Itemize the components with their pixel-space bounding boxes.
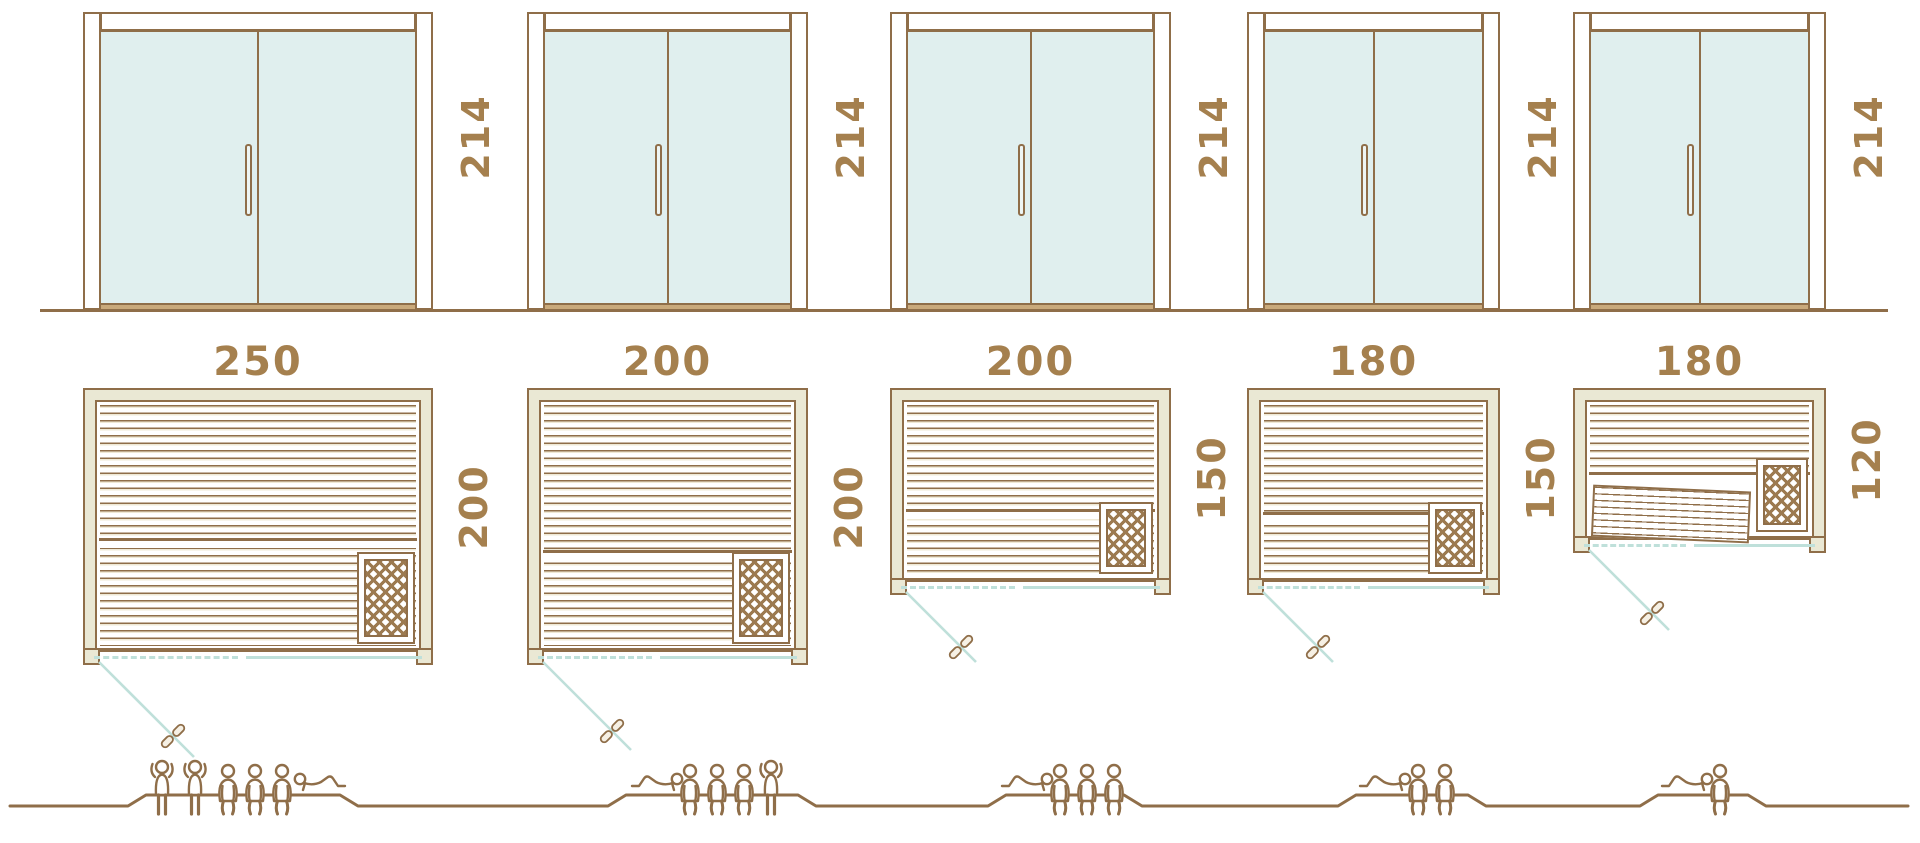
door-frame-right-post	[790, 12, 808, 310]
plan-width-label: 180	[1249, 340, 1498, 384]
floor-plan: 180 120	[1573, 388, 1826, 540]
door-handle-icon	[1687, 144, 1694, 216]
heater-grid-icon	[364, 559, 408, 637]
floor-line	[845, 309, 1233, 312]
floor-line	[482, 309, 870, 312]
ground-line	[10, 795, 1908, 806]
person-sitting-icon	[1436, 765, 1453, 814]
door-divider-line	[1030, 32, 1032, 303]
person-standing-icon	[151, 761, 172, 814]
door-handle-icon	[1361, 144, 1368, 216]
person-sitting-icon	[219, 765, 236, 814]
door-swing	[900, 588, 1060, 728]
person-sitting-icon	[1105, 765, 1122, 814]
heater-grid-icon	[1763, 465, 1801, 525]
plan-interior	[1585, 400, 1814, 538]
glass-double-door	[544, 31, 791, 304]
person-sitting-icon	[273, 765, 290, 814]
floor-line	[1202, 309, 1562, 312]
person-sitting-icon	[735, 765, 752, 814]
heater-icon	[732, 552, 790, 644]
heater-grid-icon	[1435, 509, 1475, 567]
sauna-column-1: 214 250 200	[83, 0, 433, 843]
heater-icon	[1428, 502, 1482, 574]
door-frame-right-post	[1153, 12, 1171, 310]
door-height-label: 214	[1521, 77, 1565, 197]
door-elevation: 214	[1247, 12, 1500, 310]
door-height-label: 214	[1192, 77, 1236, 197]
door-frame-header	[907, 12, 1154, 31]
door-height-label: 214	[454, 77, 498, 197]
floor-plan: 250 200	[83, 388, 433, 652]
door-frame-left-post	[890, 12, 908, 310]
door-frame-left-post	[83, 12, 101, 310]
person-lying-icon	[295, 774, 345, 790]
capacity-group-4	[1360, 765, 1454, 814]
plan-depth-label: 200	[827, 447, 871, 567]
capacity-group-3	[1002, 765, 1123, 814]
person-standing-icon	[760, 761, 781, 814]
door-frame-right-post	[1808, 12, 1826, 310]
glass-double-door	[907, 31, 1154, 304]
person-lying-icon	[1002, 774, 1052, 790]
plan-interior	[539, 400, 796, 650]
door-divider-line	[667, 32, 669, 303]
plan-interior	[1259, 400, 1488, 580]
glass-double-door	[100, 31, 416, 304]
plan-depth-label: 200	[452, 447, 496, 567]
door-frame-left-post	[1247, 12, 1265, 310]
door-height-label: 214	[829, 77, 873, 197]
floor-line	[40, 309, 495, 312]
glass-double-door	[1264, 31, 1483, 304]
person-standing-icon	[184, 761, 205, 814]
sauna-column-2: 214 200 200	[527, 0, 808, 843]
person-sitting-icon	[1051, 765, 1068, 814]
floor-line	[1528, 309, 1888, 312]
plan-width-label: 180	[1575, 340, 1824, 384]
sauna-size-diagram: 214 250 200	[0, 0, 1920, 843]
person-lying-icon	[632, 774, 682, 790]
plan-width-label: 200	[529, 340, 806, 384]
door-frame-left-post	[527, 12, 545, 310]
door-swing-line	[543, 662, 631, 750]
floor-plan: 200 150	[890, 388, 1171, 582]
door-height-label: 214	[1847, 77, 1891, 197]
door-divider-line	[257, 32, 259, 303]
floor-plan: 200 200	[527, 388, 808, 652]
heater-grid-icon	[1106, 509, 1146, 567]
capacity-group-1	[151, 761, 345, 814]
person-lying-icon	[1662, 774, 1712, 790]
door-swing	[1583, 546, 1743, 686]
glass-wall-line	[246, 656, 422, 659]
door-elevation: 214	[1573, 12, 1826, 310]
door-divider-line	[1699, 32, 1701, 303]
capacity-group-5	[1662, 765, 1729, 814]
plan-depth-label: 150	[1519, 418, 1563, 538]
door-frame-header	[1264, 12, 1483, 31]
floor-plan: 180 150	[1247, 388, 1500, 582]
door-handle-icon	[1018, 144, 1025, 216]
door-elevation: 214	[890, 12, 1171, 310]
plan-depth-label: 150	[1190, 418, 1234, 538]
door-handle-icon	[245, 144, 252, 216]
door-handle-icon	[655, 144, 662, 216]
heater-icon	[357, 552, 415, 644]
sauna-column-4: 214 180 150	[1247, 0, 1500, 843]
door-elevation: 214	[527, 12, 808, 310]
door-swing	[1257, 588, 1417, 728]
door-frame-header	[1590, 12, 1809, 31]
capacity-group-2	[632, 761, 782, 814]
angled-bench	[1591, 485, 1751, 544]
door-frame-header	[100, 12, 416, 31]
plan-depth-label: 120	[1845, 400, 1889, 520]
heater-grid-icon	[739, 559, 783, 637]
capacity-strip	[0, 743, 1920, 843]
person-sitting-icon	[1409, 765, 1426, 814]
person-sitting-icon	[1711, 765, 1728, 814]
person-sitting-icon	[681, 765, 698, 814]
door-swing-line	[1589, 550, 1669, 630]
person-sitting-icon	[708, 765, 725, 814]
person-lying-icon	[1360, 774, 1410, 790]
person-sitting-icon	[1078, 765, 1095, 814]
door-swing-line	[1263, 592, 1333, 662]
sauna-column-3: 214 200 150	[890, 0, 1171, 843]
plan-width-label: 200	[892, 340, 1169, 384]
door-swing-line	[906, 592, 976, 662]
door-frame-left-post	[1573, 12, 1591, 310]
door-frame-header	[544, 12, 791, 31]
door-frame-right-post	[1482, 12, 1500, 310]
person-sitting-icon	[246, 765, 263, 814]
plan-interior	[902, 400, 1159, 580]
glass-double-door	[1590, 31, 1809, 304]
door-elevation: 214	[83, 12, 433, 310]
bench-edge-line	[99, 538, 417, 548]
plan-width-label: 250	[85, 340, 431, 384]
sauna-column-5: 214 180 120	[1573, 0, 1826, 843]
door-frame-right-post	[415, 12, 433, 310]
heater-icon	[1756, 458, 1808, 532]
heater-icon	[1099, 502, 1153, 574]
plan-interior	[95, 400, 421, 650]
door-divider-line	[1373, 32, 1375, 303]
